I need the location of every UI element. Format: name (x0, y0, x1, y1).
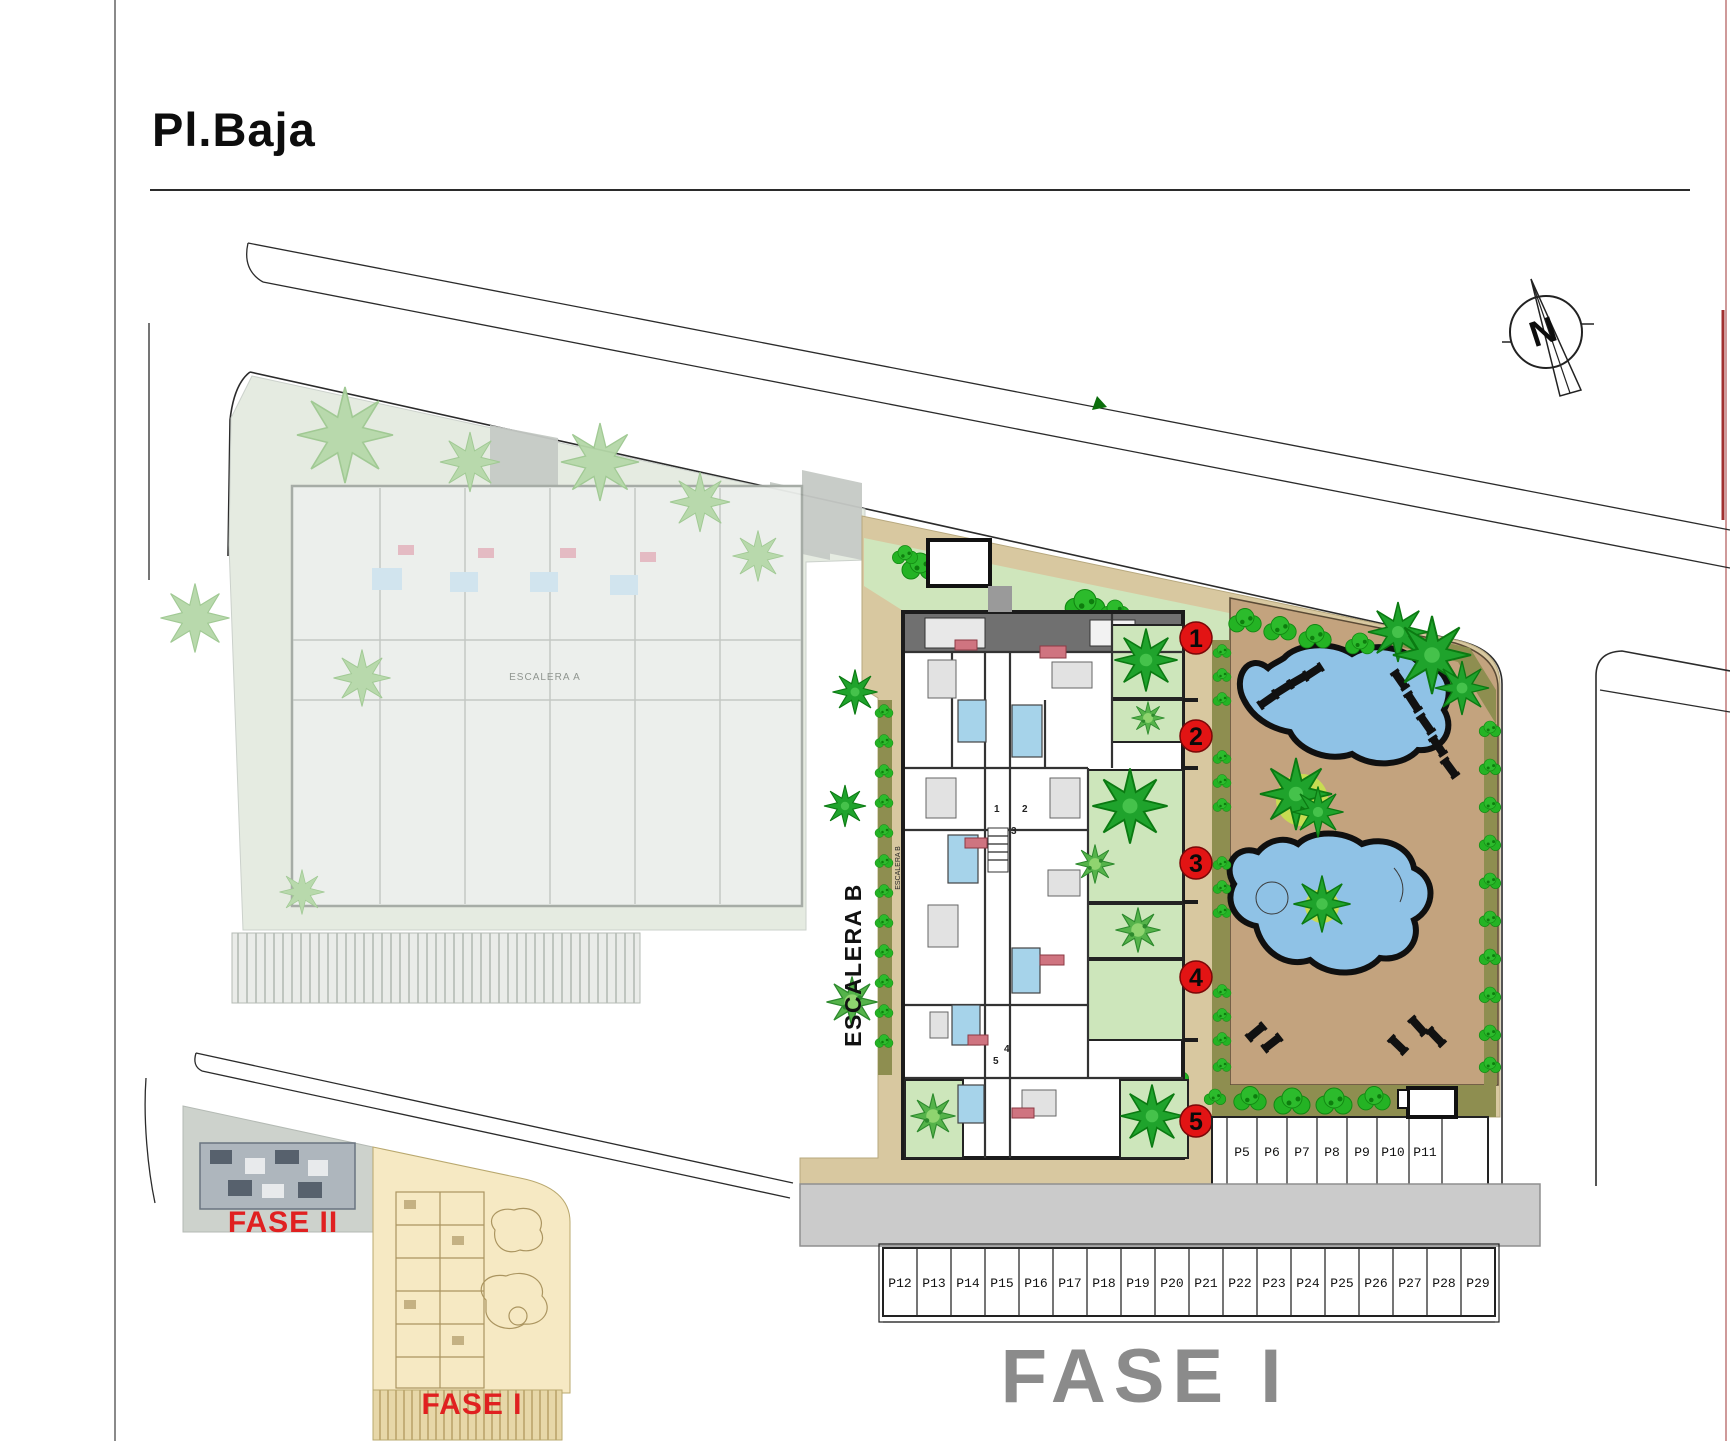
parking-stall: P12 (888, 1276, 911, 1291)
small-tree-marker (1092, 396, 1107, 410)
page-title: Pl.Baja (152, 103, 316, 156)
svg-text:4: 4 (1189, 964, 1203, 992)
parking-stall: P23 (1262, 1276, 1285, 1291)
inset-key-plan: FASE II FASE I (145, 1053, 793, 1440)
parking-stall: P24 (1296, 1276, 1320, 1291)
unit-marker-2: 2 (1180, 720, 1212, 752)
parking-stall: P19 (1126, 1276, 1149, 1291)
stair-b-core (988, 828, 1008, 872)
parking-stall: P22 (1228, 1276, 1251, 1291)
plan-digit-2: 2 (1022, 804, 1028, 815)
unit-marker-1: 1 (1180, 622, 1212, 654)
parking-row-bottom: P12 P13 P14 P15 P16 P17 P18 P19 P20 P21 … (879, 1244, 1499, 1322)
stair-a-label: ESCALERA A (509, 672, 581, 683)
parking-stall: P10 (1381, 1145, 1404, 1160)
phase1-large-label: FASE I (1001, 1334, 1290, 1419)
stair-b-small-label: ESCALERA B (895, 846, 902, 890)
utility-box (1408, 1088, 1456, 1117)
parking-stall: P27 (1398, 1276, 1421, 1291)
entry-court (928, 540, 990, 586)
phase1-area: ESCALERA B 1 2 3 4 5 ESCALERA B 1 (800, 516, 1501, 1186)
parking-stall: P28 (1432, 1276, 1455, 1291)
parking-stall: P20 (1160, 1276, 1183, 1291)
plan-digit-1: 1 (994, 804, 1000, 815)
parking-stall: P26 (1364, 1276, 1387, 1291)
parking-stall: P15 (990, 1276, 1013, 1291)
site-plan-canvas: Pl.Baja ESCALERA (0, 0, 1730, 1441)
parking-stall: P13 (922, 1276, 945, 1291)
parking-stall: P18 (1092, 1276, 1115, 1291)
access-road (800, 1184, 1540, 1246)
floorplan-page: Pl.Baja ESCALERA (0, 0, 1730, 1441)
parking-stall: P7 (1294, 1145, 1310, 1160)
svg-text:2: 2 (1189, 723, 1203, 751)
parking-stall: P9 (1354, 1145, 1370, 1160)
phase1-building: ESCALERA B 1 2 3 4 5 (895, 540, 1198, 1158)
plan-digit-3: 3 (1011, 826, 1017, 837)
north-arrow-icon: N (1502, 279, 1594, 396)
parking-stall: P16 (1024, 1276, 1047, 1291)
stair-b-label: ESCALERA B (840, 883, 866, 1047)
phase2-hatched-strip (232, 933, 640, 1003)
svg-text:1: 1 (1189, 625, 1203, 653)
parking-stall: P5 (1234, 1145, 1250, 1160)
inset-phase2-label: FASE II (228, 1206, 338, 1239)
parking-stall: P8 (1324, 1145, 1340, 1160)
parking-stall: P14 (956, 1276, 980, 1291)
parking-stall: P6 (1264, 1145, 1280, 1160)
plan-digit-5: 5 (993, 1056, 999, 1067)
parking-stall: P29 (1466, 1276, 1489, 1291)
phase2-area-faded: ESCALERA A (161, 376, 866, 1003)
plan-digit-4: 4 (1004, 1044, 1010, 1055)
parking-stall: P25 (1330, 1276, 1353, 1291)
phase2-building-faded (292, 486, 802, 906)
svg-text:5: 5 (1189, 1108, 1203, 1136)
unit-marker-3: 3 (1180, 847, 1212, 879)
svg-text:3: 3 (1189, 850, 1203, 878)
inset-phase1-label: FASE I (421, 1388, 522, 1421)
parking-stall: P17 (1058, 1276, 1081, 1291)
parking-stall: P11 (1413, 1145, 1437, 1160)
parking-stall: P21 (1194, 1276, 1218, 1291)
unit-marker-5: 5 (1180, 1105, 1212, 1137)
unit-marker-4: 4 (1180, 961, 1212, 993)
